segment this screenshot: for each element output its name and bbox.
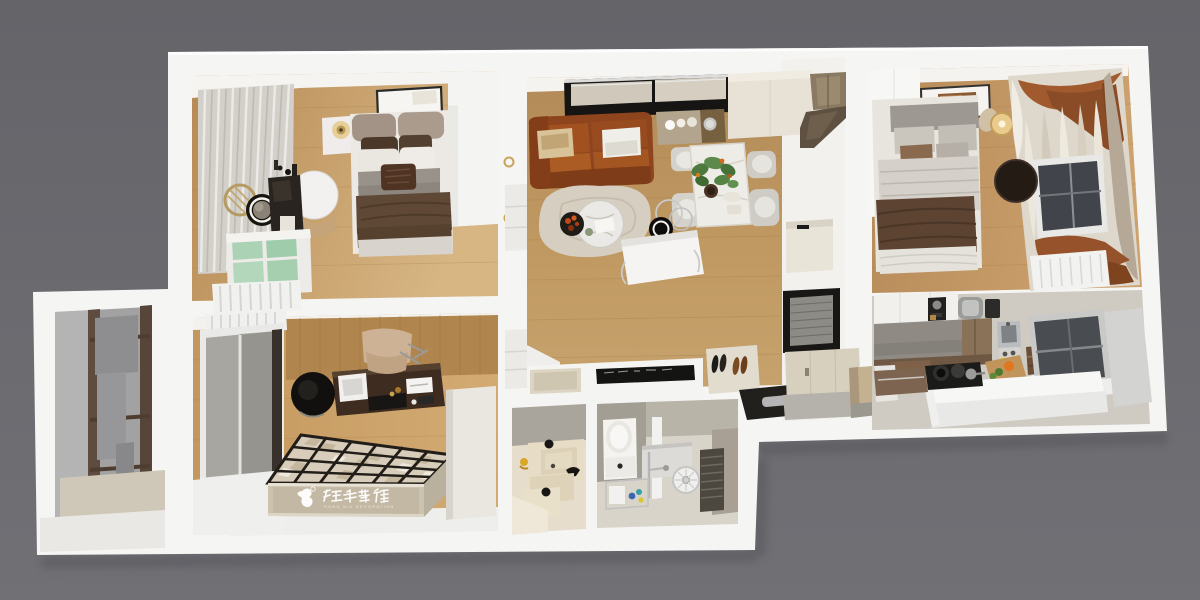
svg-text:HONG NIU DECORATION: HONG NIU DECORATION [324, 504, 394, 509]
